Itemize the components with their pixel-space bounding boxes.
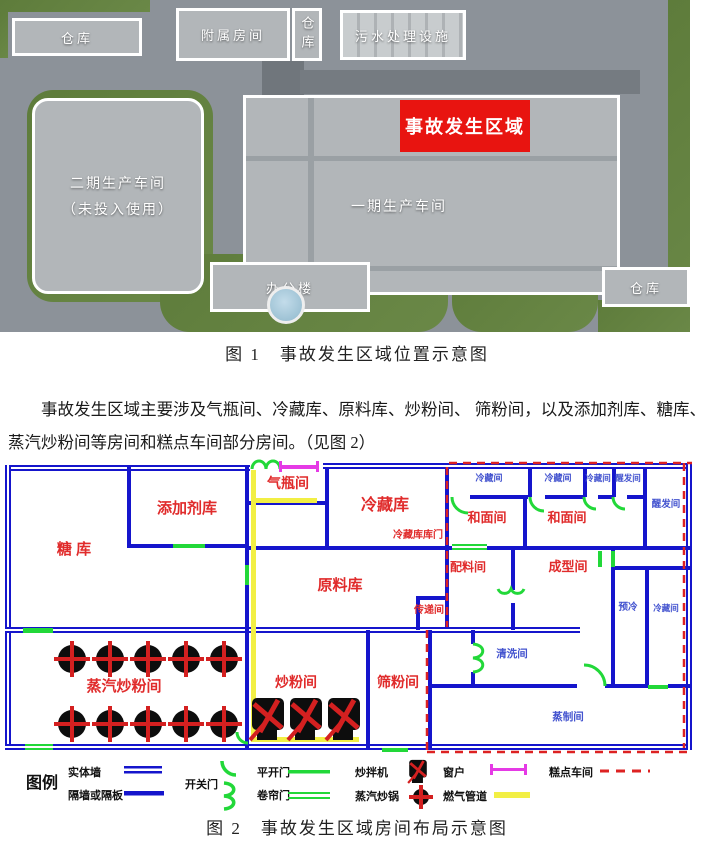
road-strip-horizontal (300, 70, 640, 94)
solid-wall-gap (7, 465, 9, 750)
legend-item: 燃气管道 (442, 789, 530, 803)
window-symbol (524, 764, 527, 775)
building-label: 仓库 (298, 16, 317, 54)
partition-wall (447, 546, 452, 550)
room-label: 冷藏间 (475, 472, 502, 483)
partition-wall (487, 546, 692, 550)
steam-pot-icon (168, 706, 204, 742)
window (282, 465, 318, 469)
accident-area-badge-label: 事故发生区域 (405, 113, 525, 139)
window-symbol (492, 768, 526, 771)
steam-pot-icon (206, 641, 242, 677)
building-label: 一期生产车间 (351, 196, 447, 216)
figure2-floorplan: 糖 库添加剂库气瓶间冷藏库冷藏库库门原料库传递间配料间和面间和面间成型间蒸汽炒粉… (0, 450, 714, 812)
swing-door-arc (498, 589, 524, 593)
steam-pot-icon (168, 641, 204, 677)
room-label: 炒粉间 (275, 674, 317, 690)
partition-wall (627, 495, 643, 499)
room-label: 冷藏库库门 (393, 528, 443, 541)
mixer-icon (408, 760, 427, 783)
partition-wall (249, 546, 447, 550)
legend-title: 图例 (26, 773, 58, 792)
solid-wall-gap (323, 465, 692, 467)
partition-wall (511, 550, 515, 590)
partition-wall (430, 684, 577, 688)
partition-wall (366, 630, 370, 748)
room-label: 糖 库 (57, 540, 91, 558)
swing-door-arc (613, 497, 625, 509)
room-label: 传递间 (413, 603, 444, 616)
gas-pipeline (253, 498, 317, 503)
partition-wall (245, 585, 249, 748)
partition-wall (325, 467, 329, 550)
partition-wall (470, 495, 528, 499)
legend-item-label: 炒拌机 (355, 765, 388, 779)
partition-wall (428, 630, 432, 748)
legend-item: 卷帘门 (256, 788, 330, 802)
room-label: 和面间 (467, 510, 506, 525)
partition-wall (598, 495, 612, 499)
door (25, 744, 53, 746)
room-label: 冷藏间 (544, 472, 571, 483)
door (648, 685, 668, 689)
partition-symbol (124, 791, 164, 796)
door (598, 551, 602, 567)
building-label: （未投入使用） (62, 196, 174, 222)
swing-door-arc (473, 644, 483, 672)
solid-wall-gap (5, 629, 580, 631)
building-warehouse-bottom-right: 仓库 (602, 267, 690, 307)
steam-pot-icon (130, 641, 166, 677)
legend-item-label: 糕点车间 (548, 765, 593, 779)
partition-wall (245, 467, 249, 544)
room-label: 预冷 (618, 601, 638, 613)
swing-door-arc (452, 497, 468, 513)
grass-strip-top (0, 0, 150, 12)
room-label: 成型间 (548, 559, 587, 574)
door (611, 551, 615, 567)
solid-wall-gap (5, 746, 692, 748)
legend-item-label: 燃气管道 (442, 789, 487, 803)
window-symbol (490, 764, 493, 775)
figure1-aerial-photo: 仓库 附属房间 仓库 污水处理设施 二期生产车间 （未投入使用） 一期生产车间 … (0, 0, 690, 332)
room-label: 冷藏间 (585, 473, 611, 483)
room-label: 冷藏库 (361, 495, 409, 514)
steam-pot-icon (409, 785, 433, 809)
room-label: 和面间 (547, 510, 586, 525)
solid-wall-symbol (124, 766, 162, 769)
mixer-icon (288, 698, 322, 740)
roller-door-symbol (288, 797, 330, 799)
partition-wall (471, 630, 475, 644)
door (452, 548, 487, 550)
steam-pot-icon (92, 641, 128, 677)
building-sewage-treatment: 污水处理设施 (340, 10, 466, 60)
room-label: 添加剂库 (157, 499, 217, 517)
body-paragraph: 事故发生区域主要涉及气瓶间、冷藏库、原料库、炒粉间、 筛粉间，以及添加剂库、糖库… (8, 393, 706, 459)
partition-wall (528, 467, 532, 497)
room-label: 醒发间 (615, 473, 641, 483)
room-label: 原料库 (317, 576, 362, 594)
swing-door-arc (584, 497, 596, 509)
partition-wall (611, 566, 692, 570)
legend-item-label: 窗户 (443, 765, 465, 779)
swing-door-symbol (222, 761, 236, 775)
partition-wall (611, 550, 615, 686)
accident-area-badge: 事故发生区域 (400, 100, 530, 152)
figure2-caption: 图 2 事故发生区域房间布局示意图 (0, 814, 714, 839)
grass-strip-left (0, 12, 8, 58)
fountain (267, 286, 305, 324)
room-label: 冷藏间 (653, 603, 679, 613)
legend-item-label: 蒸汽炒锅 (355, 789, 399, 803)
room-label: 醒发间 (652, 498, 681, 510)
room-label: 蒸制间 (552, 710, 584, 723)
legend-item: 炒拌机 (355, 765, 388, 779)
room-label: 气瓶间 (266, 475, 309, 491)
partition-wall (545, 495, 583, 499)
legend-item-label: 隔墙或隔板 (68, 788, 124, 802)
legend-item: 平开门 (257, 765, 330, 779)
building-label: 仓库 (630, 278, 662, 297)
road-strip-vertical (262, 61, 304, 97)
roof-line (246, 156, 617, 161)
building-label: 污水处理设施 (355, 26, 451, 45)
building-warehouse-top-left: 仓库 (12, 18, 142, 56)
gas-pipe-symbol (494, 792, 530, 798)
solid-wall-symbol (124, 771, 162, 774)
room-label: 配料间 (450, 559, 486, 574)
room-label: 清洗间 (496, 647, 528, 660)
building-label: 二期生产车间 (70, 170, 166, 196)
swing-door-arc (530, 497, 544, 511)
door (382, 748, 408, 752)
legend-item: 隔墙或隔板 (68, 788, 164, 802)
window (316, 461, 319, 472)
partition-wall (605, 684, 648, 688)
legend-item: 蒸汽炒锅 (355, 789, 399, 803)
door (452, 544, 487, 546)
document-page: 仓库 附属房间 仓库 污水处理设施 二期生产车间 （未投入使用） 一期生产车间 … (0, 0, 714, 843)
single-door-symbol (288, 770, 330, 774)
building-label: 仓库 (61, 28, 93, 47)
legend-item: 糕点车间 (548, 765, 650, 779)
door (173, 544, 205, 548)
door (25, 748, 53, 750)
room-label: 蒸汽炒粉间 (86, 677, 161, 695)
partition-wall (416, 596, 449, 600)
room-label: 筛粉间 (377, 674, 419, 690)
legend-item-label: 实体墙 (68, 765, 101, 779)
partition-wall (205, 544, 249, 548)
swing-door-arc (584, 665, 605, 686)
legend-item: 开关门 (185, 761, 236, 809)
partition-wall (245, 546, 249, 565)
mixer-icon (250, 698, 284, 740)
partition-wall (471, 672, 475, 686)
mixer-icon (326, 698, 360, 740)
partition-wall (523, 497, 527, 546)
partition-wall (511, 603, 515, 630)
steam-pot-icon (130, 706, 166, 742)
steam-pot-icon (54, 706, 90, 742)
legend-item: 窗户 (443, 764, 527, 779)
legend-item-label: 卷帘门 (256, 788, 290, 802)
window (279, 461, 282, 472)
swing-door-symbol (224, 783, 234, 809)
partition-wall (127, 544, 173, 548)
door (23, 628, 53, 633)
door (245, 565, 249, 585)
legend-item-label: 开关门 (185, 777, 218, 791)
partition-wall (668, 684, 690, 688)
building-annex: 附属房间 (176, 8, 290, 61)
legend-item-label: 平开门 (257, 765, 290, 779)
building-label: 附属房间 (201, 25, 265, 44)
solid-wall-gap (688, 463, 690, 750)
roller-door-symbol (288, 792, 330, 794)
partition-wall (643, 467, 647, 546)
building-warehouse-top: 仓库 (292, 8, 322, 61)
steam-pot-icon (92, 706, 128, 742)
building-phase2-workshop: 二期生产车间 （未投入使用） (32, 98, 204, 294)
partition-wall (127, 467, 131, 548)
legend-item: 实体墙 (68, 765, 162, 779)
steam-pot-icon (54, 641, 90, 677)
partition-wall (645, 568, 649, 686)
figure1-caption: 图 1 事故发生区域位置示意图 (0, 340, 714, 365)
swing-door-arc (252, 461, 280, 469)
